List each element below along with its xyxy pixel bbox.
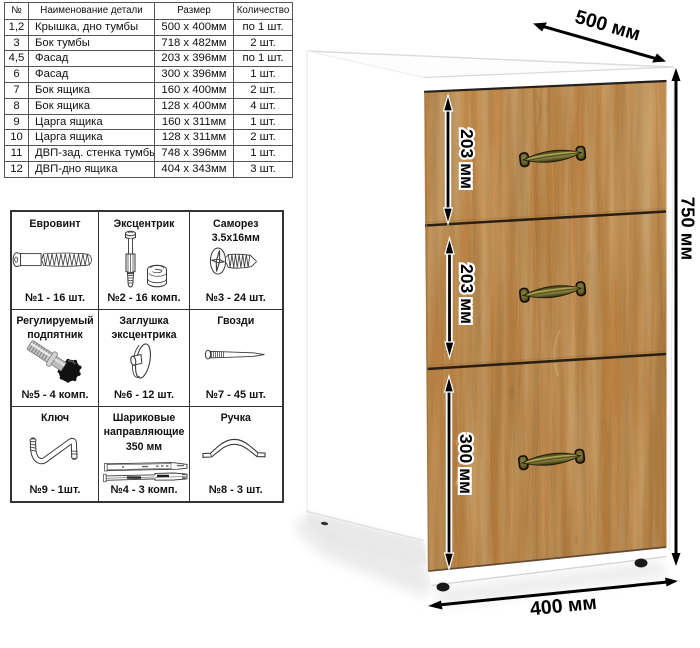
svg-text:300 мм: 300 мм <box>456 434 476 494</box>
svg-text:203 мм: 203 мм <box>457 129 477 189</box>
svg-text:203 мм: 203 мм <box>457 264 477 324</box>
svg-text:500 мм: 500 мм <box>573 6 643 46</box>
svg-text:750 мм: 750 мм <box>678 197 699 260</box>
